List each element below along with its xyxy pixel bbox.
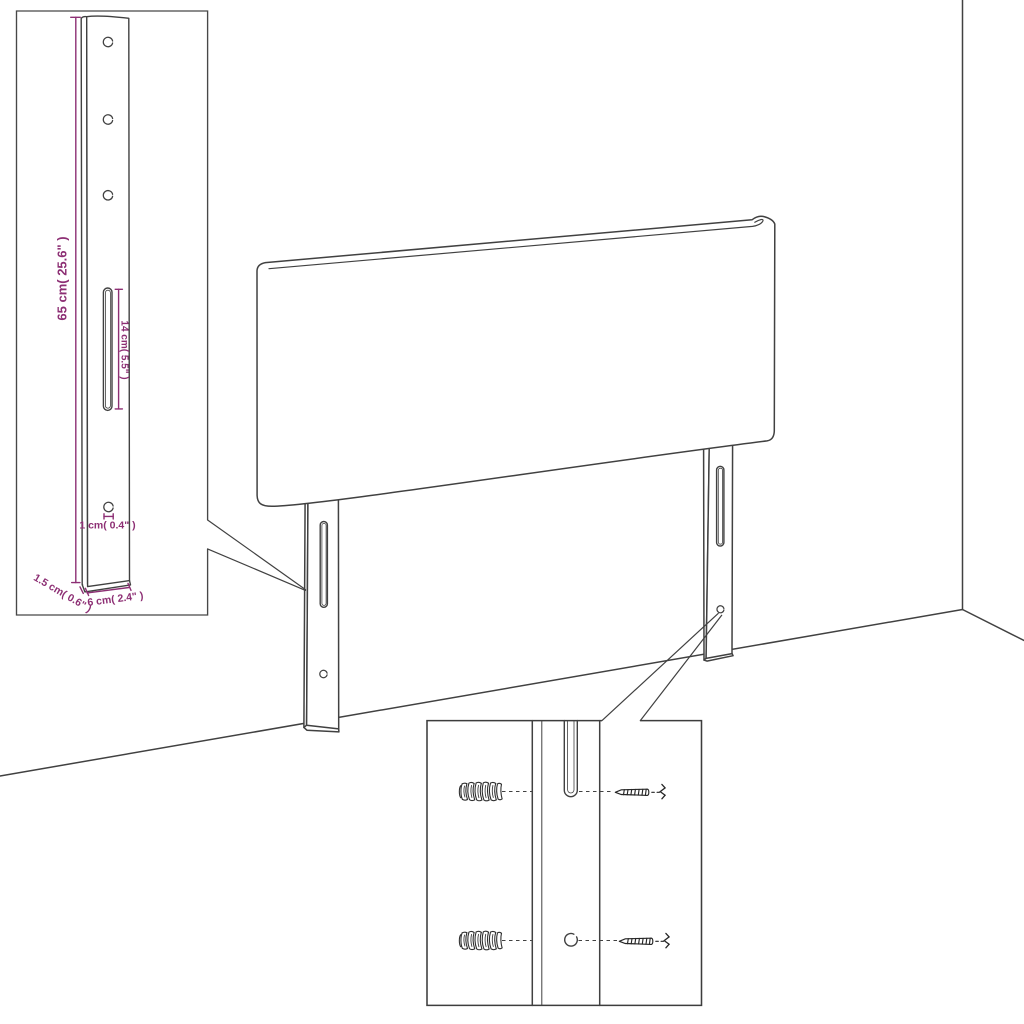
svg-text:1 cm( 0.4" ): 1 cm( 0.4" ) (79, 520, 135, 532)
svg-text:65 cm( 25.6" ): 65 cm( 25.6" ) (55, 236, 70, 320)
svg-text:14 cm( 5.5" ): 14 cm( 5.5" ) (118, 320, 129, 379)
